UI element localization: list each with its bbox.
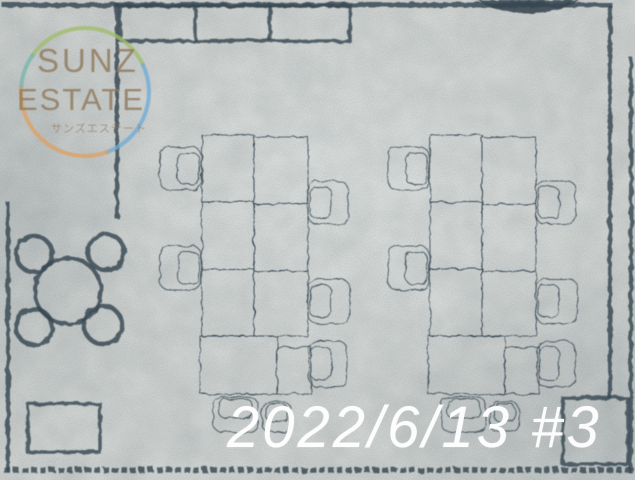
date-stamp: 2022/6/13 #3 bbox=[227, 399, 635, 457]
floor-plan-scan: SUNZ ESTATE サンズエステート 2022/6/13 #3 bbox=[0, 0, 635, 480]
